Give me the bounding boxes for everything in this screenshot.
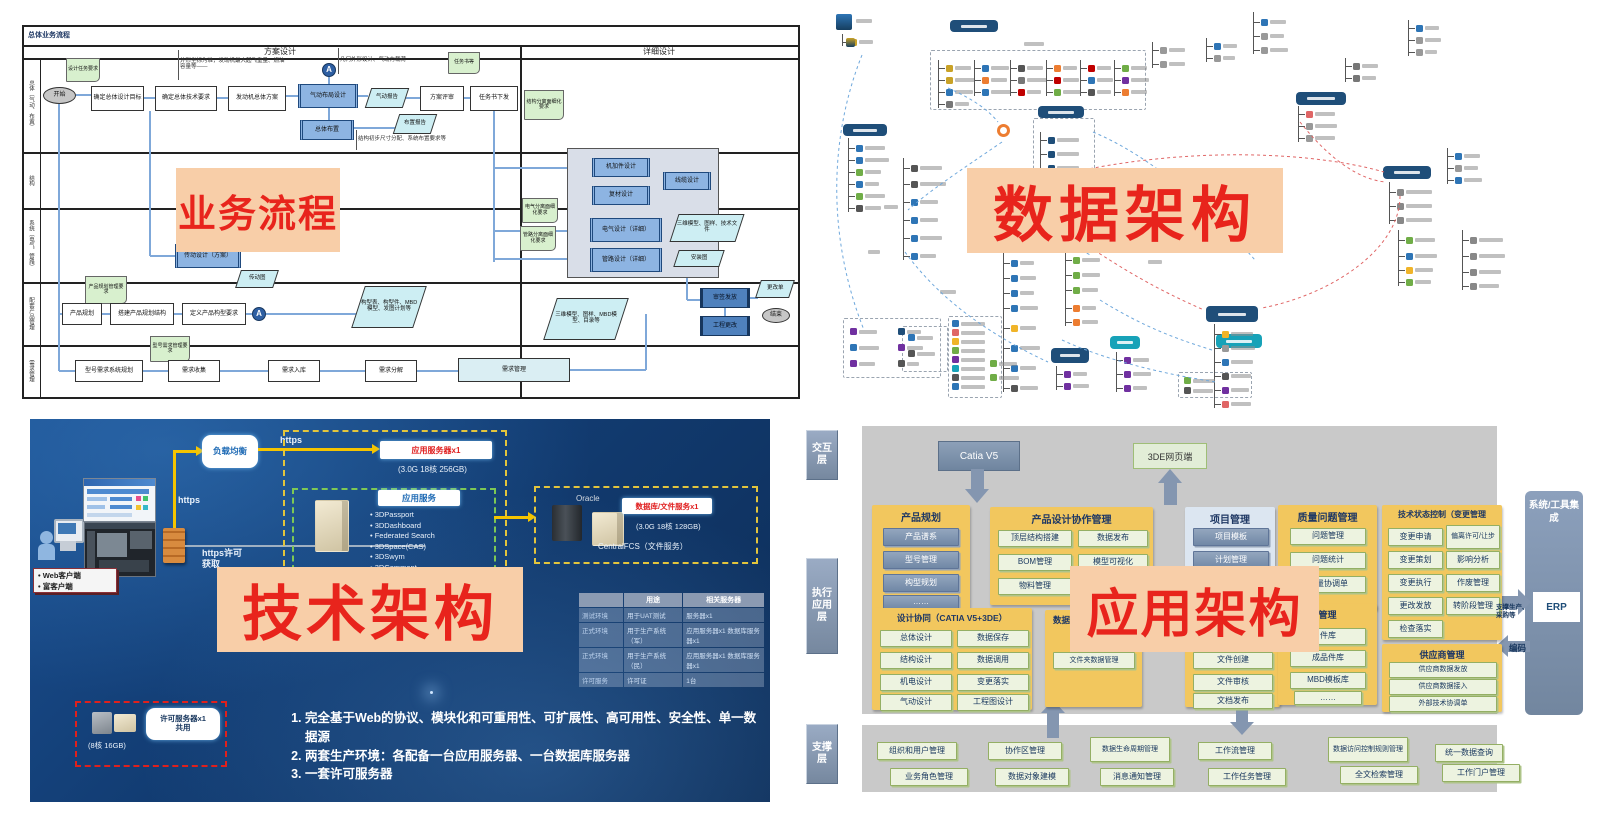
tree-node-label-bar — [1415, 268, 1433, 272]
lane-label-4: 需求管理 — [23, 345, 39, 397]
tree-branch — [1040, 154, 1047, 155]
table-header: 用途 — [624, 593, 682, 607]
tree-branch — [1003, 328, 1010, 329]
tree-branch — [1046, 80, 1053, 81]
web-client-screenshot — [83, 478, 156, 522]
tree-trunk-24 — [842, 34, 843, 46]
tree-node-icon — [911, 181, 918, 188]
app-button-8-1[interactable]: 成品件库 — [1290, 650, 1366, 667]
tree-node-label-bar — [955, 66, 971, 70]
tree-branch — [848, 208, 855, 209]
tree-node-label-bar — [1133, 386, 1147, 390]
tree-node-icon — [856, 181, 863, 188]
tree-node-icon — [1048, 151, 1055, 158]
leaf-label-bar — [961, 367, 985, 371]
leaf-icon-12 — [952, 356, 959, 363]
app-button-9-1[interactable]: 供应商数据接入 — [1389, 679, 1497, 695]
tree-node-label-bar — [991, 90, 1011, 94]
erp-box: ERP — [1533, 592, 1580, 622]
tree-trunk-18 — [1398, 230, 1399, 286]
tree-node-label-bar — [1027, 90, 1041, 94]
tree-branch — [1214, 348, 1221, 349]
tree-branch — [1206, 58, 1213, 59]
app-button-0-1[interactable]: 型号管理 — [883, 551, 959, 569]
tree-node-label-bar — [1425, 50, 1437, 54]
flow-node-proc-30: 产品规划 — [62, 303, 102, 325]
app-button-2-0[interactable]: 项目模板 — [1193, 528, 1269, 546]
app-button-5-0[interactable]: 总体设计 — [880, 630, 952, 647]
tree-node-icon — [1054, 77, 1061, 84]
leaf-icon-0 — [850, 328, 857, 335]
leaf-icon-17 — [990, 374, 997, 381]
tree-node-icon — [911, 199, 918, 206]
tree-node-icon — [1455, 165, 1462, 172]
service-item: • 3DSpace(CAS) — [370, 542, 435, 553]
flow-line-31 — [724, 308, 725, 316]
app-button-0-2[interactable]: 构型规划 — [883, 574, 959, 592]
app-button-4-6[interactable]: 更改发放 — [1388, 597, 1443, 615]
tree-trunk-3 — [1046, 60, 1047, 96]
app-button-7-1[interactable]: 文件审核 — [1193, 674, 1273, 691]
leaf-label-bar — [907, 330, 921, 334]
tree-node-label-bar — [1057, 138, 1079, 142]
tree-node-icon — [1397, 203, 1404, 210]
flow-line-16 — [59, 370, 75, 371]
business-process-flowchart: 总体业务流程方案设计详细设计总体（气动、布置）结构系统（电气、管路）配套产品管理… — [0, 0, 804, 408]
tree-node-label-bar — [1073, 372, 1087, 376]
leaf-label-bar — [907, 346, 923, 350]
leaf-icon-13 — [952, 365, 959, 372]
float-label-bar-0 — [856, 19, 872, 23]
tree-node-icon — [1406, 279, 1413, 286]
tree-trunk-20 — [1447, 148, 1448, 184]
leaf-label-bar — [859, 330, 877, 334]
tree-node-label-bar — [920, 254, 936, 258]
tree-node-icon — [1054, 89, 1061, 96]
tree-branch — [903, 202, 910, 203]
mindmap-topic-pill-7 — [1110, 336, 1140, 349]
service-item: • 3DPassport — [370, 510, 435, 521]
leaf-label-bar — [961, 349, 985, 353]
support-button-3[interactable]: 工作流管理 — [1198, 742, 1272, 760]
tree-node-label-bar — [1406, 204, 1432, 208]
tree-node-icon — [856, 169, 863, 176]
tree-node-icon — [1073, 305, 1080, 312]
tree-node-icon — [1054, 65, 1061, 72]
tree-trunk-14 — [1003, 253, 1004, 392]
tree-node-label-bar — [1362, 64, 1378, 68]
tree-node-icon — [1122, 77, 1129, 84]
app-server-icon — [315, 500, 349, 552]
tree-node-label-bar — [1362, 76, 1376, 80]
tree-branch — [1214, 404, 1221, 405]
tree-node-icon — [946, 101, 953, 108]
tree-node-label-bar — [1223, 56, 1235, 60]
tree-branch — [974, 92, 981, 93]
section-title: 质量问题管理 — [1278, 505, 1377, 524]
tree-branch — [938, 68, 945, 69]
tree-node-icon — [911, 235, 918, 242]
float-label-bar-5 — [940, 290, 956, 294]
tree-node-icon — [911, 217, 918, 224]
app-server-title: 应用服务器x1 — [380, 441, 492, 459]
app-button-6-0[interactable]: 文件夹数据管理 — [1053, 652, 1135, 669]
leaf-label-bar — [961, 376, 985, 380]
tree-branch — [938, 80, 945, 81]
support-button-10[interactable]: 全文检索管理 — [1340, 766, 1418, 784]
tree-node-label-bar — [1479, 238, 1503, 242]
table-row: 许可服务许可证1台 — [579, 673, 764, 687]
app-button-1-0[interactable]: 顶层结构搭建 — [998, 530, 1072, 547]
tree-node-label-bar — [1073, 384, 1089, 388]
flow-node-note-29: 产品规划管理要求 — [85, 276, 127, 304]
tree-node-icon — [1353, 63, 1360, 70]
tree-node-icon — [1470, 253, 1477, 260]
section-title: 设计协同（CATIA V5+3DE） — [872, 608, 1032, 624]
tree-branch — [848, 196, 855, 197]
tree-node-icon — [856, 205, 863, 212]
tree-node-label-bar — [1231, 374, 1251, 378]
tree-branch — [1116, 374, 1123, 375]
tree-node-icon — [1416, 49, 1423, 56]
column-header-detail: 详细设计 — [520, 46, 798, 58]
tree-node-label-bar — [1063, 78, 1079, 82]
tree-branch — [848, 184, 855, 185]
mindmap-topic-pill-2 — [1038, 106, 1084, 118]
flow-node-ell-1: 开始 — [43, 87, 76, 104]
tree-branch — [848, 172, 855, 173]
flow-line-4 — [328, 77, 329, 84]
app-button-3-0[interactable]: 问题管理 — [1290, 528, 1366, 545]
tree-node-label-bar — [920, 182, 946, 186]
tree-node-icon — [1397, 217, 1404, 224]
tree-node-label-bar — [1020, 366, 1036, 370]
flow-node-proc-42: 需求收集 — [168, 360, 220, 382]
tree-trunk-16 — [1298, 106, 1299, 142]
flow-line-17 — [149, 111, 150, 256]
tree-node-label-bar — [1131, 78, 1149, 82]
table-cell: 用于生产系统（民） — [624, 648, 682, 672]
overlay-tech-architecture: 技术架构 — [217, 567, 523, 652]
tree-node-label-bar — [865, 194, 885, 198]
support-button-1[interactable]: 协作区管理 — [988, 742, 1062, 760]
leaf-label-bar — [961, 322, 985, 326]
leaf-label-bar — [1193, 379, 1215, 383]
app-button-0-0[interactable]: 产品谱系 — [883, 528, 959, 546]
tree-node-icon — [982, 89, 989, 96]
user-icon — [38, 517, 86, 569]
mindmap-topic-pill-6 — [1051, 348, 1089, 363]
overlay-app-architecture: 应用架构 — [1070, 566, 1319, 652]
flow-node-para-8: 气动报告 — [365, 88, 409, 108]
flow-line-6 — [328, 108, 329, 120]
support-button-0[interactable]: 组织和用户管理 — [877, 742, 957, 760]
tree-node-label-bar — [865, 206, 881, 210]
tree-node-label-bar — [1131, 66, 1147, 70]
table-cell: 用于UAT测试 — [624, 608, 682, 622]
support-button-7[interactable]: 数据对象建模 — [995, 768, 1069, 786]
tree-node-label-bar — [865, 182, 879, 186]
tree-node-icon — [1214, 55, 1221, 62]
app-button-5-5[interactable]: 变更落实 — [957, 674, 1029, 691]
app-button-1-1[interactable]: 数据发布 — [1078, 530, 1148, 547]
tree-node-icon — [946, 89, 953, 96]
leaf-icon-4 — [898, 344, 905, 351]
tree-node-icon — [1261, 47, 1268, 54]
tree-branch — [1298, 126, 1305, 127]
flow-node-proc-2: 确定总体设计目标 — [91, 86, 144, 111]
support-button-4[interactable]: 数据访问控制规则管理 — [1328, 737, 1408, 762]
tree-node-icon — [1064, 383, 1071, 390]
catia-v5-box: Catia V5 — [938, 441, 1020, 471]
tree-node-icon — [1353, 75, 1360, 82]
tree-trunk-1 — [974, 60, 975, 96]
leaf-icon-16 — [990, 360, 997, 367]
app-button-8-2[interactable]: MBD模板库 — [1290, 672, 1366, 689]
table-cell: 1台 — [683, 673, 764, 687]
tree-branch — [1114, 92, 1121, 93]
app-button-5-3[interactable]: 数据调用 — [957, 652, 1029, 669]
tree-node-icon — [1122, 89, 1129, 96]
tree-node-icon — [946, 77, 953, 84]
app-button-4-3[interactable]: 影响分析 — [1446, 551, 1500, 569]
leaf-icon-3 — [898, 328, 905, 335]
tree-branch — [1214, 376, 1221, 377]
support-button-6[interactable]: 业务角色管理 — [890, 768, 968, 786]
app-button-4-0[interactable]: 变更申请 — [1388, 528, 1443, 546]
support-button-8[interactable]: 消息通知管理 — [1100, 768, 1174, 786]
tree-node-label-bar — [1082, 306, 1096, 310]
flow-node-note-0: 设计任务要求 — [66, 58, 100, 82]
license-spec: (8核 16GB) — [88, 740, 126, 751]
service-item: • 3DSwym — [370, 552, 435, 563]
header-separator — [22, 58, 798, 60]
flow-line-24 — [220, 370, 268, 371]
leaf-icon-1 — [850, 344, 857, 351]
tree-node-icon — [1222, 331, 1229, 338]
app-button-7-0[interactable]: 文件创建 — [1193, 652, 1273, 669]
tree-node-icon — [1397, 189, 1404, 196]
https-left-label: https — [178, 495, 200, 505]
tree-branch — [1462, 240, 1469, 241]
layer-tab-interaction: 交互层 — [806, 430, 838, 480]
support-button-5[interactable]: 统一数据查询 — [1435, 744, 1503, 762]
app-button-9-0[interactable]: 供应商数据发放 — [1389, 662, 1497, 678]
tree-node-icon — [1011, 325, 1018, 332]
tree-node-label-bar — [1464, 166, 1478, 170]
app-button-4-5[interactable]: 作废管理 — [1446, 574, 1500, 592]
tree-branch — [1046, 68, 1053, 69]
note-item: 完全基于Web的协议、模块化和可重用性、可扩展性、高可用性、安全性、单一数据源 — [305, 709, 767, 747]
leaf-label-bar — [917, 336, 933, 340]
flow-line-27 — [570, 369, 646, 370]
tree-node-label-bar — [1082, 258, 1100, 262]
catia-down-arrow — [971, 469, 984, 489]
app-button-9-2[interactable]: 外部技术协调单 — [1389, 696, 1497, 712]
tree-node-icon — [1306, 111, 1313, 118]
tree-trunk-8 — [1253, 12, 1254, 54]
tree-node-icon — [1011, 275, 1018, 282]
section-title: 供应商管理 — [1382, 644, 1502, 661]
tree-node-icon — [1122, 65, 1129, 72]
tree-branch — [1408, 40, 1415, 41]
app-button-4-1[interactable]: 偏离许可/让步 — [1446, 525, 1500, 549]
tree-node-label-bar — [1231, 346, 1255, 350]
flow-node-cA-33: A — [252, 307, 266, 321]
app-button-7-2[interactable]: 文档发布 — [1193, 693, 1273, 709]
tree-node-label-bar — [865, 170, 881, 174]
tree-node-label-bar — [1063, 66, 1077, 70]
tree-node-label-bar — [1231, 388, 1249, 392]
leaf-icon-18 — [1184, 377, 1191, 384]
tree-node-icon — [1018, 89, 1025, 96]
app-button-4-8[interactable]: 检查落实 — [1388, 620, 1443, 638]
tree-node-label-bar — [1464, 178, 1482, 182]
tree-node-icon — [1416, 25, 1423, 32]
tree-branch — [1065, 308, 1072, 309]
tree-branch — [1003, 368, 1010, 369]
tree-branch — [848, 160, 855, 161]
tree-node-icon — [1064, 371, 1071, 378]
tree-branch — [903, 184, 910, 185]
app-button-4-7[interactable]: 转阶段管理 — [1446, 597, 1500, 615]
tree-node-label-bar — [1223, 44, 1237, 48]
leaf-label-bar — [1193, 389, 1213, 393]
tree-node-label-bar — [1406, 218, 1432, 222]
tree-trunk-12 — [903, 158, 904, 260]
license-line2: 共用 — [176, 724, 191, 733]
table-header: 相关服务器 — [683, 593, 764, 607]
flow-line-14 — [58, 104, 59, 371]
flow-node-proc-4: 发动机总体方案 — [228, 86, 286, 111]
big-icon-0 — [836, 14, 852, 30]
app-button-5-7[interactable]: 工程图设计 — [957, 694, 1029, 711]
tree-node-label-bar — [1169, 48, 1185, 52]
leaf-label-bar — [907, 362, 919, 366]
flow-node-para-24: 安装图 — [673, 250, 725, 267]
lane-label-0: 总体（气动、布置） — [23, 58, 39, 152]
tree-node-icon — [1470, 269, 1477, 276]
tree-branch — [1298, 114, 1305, 115]
flow-node-para-38: 更改单 — [755, 280, 795, 298]
tree-node-label-bar — [1270, 34, 1284, 38]
flow-line-25 — [320, 370, 365, 371]
app-button-5-4[interactable]: 机电设计 — [880, 674, 952, 691]
flow-node-ann-15: 结构初步尺寸分配、系统布置要求等 — [356, 130, 448, 150]
tree-branch — [1447, 168, 1454, 169]
support-button-2[interactable]: 数据生命周期管理 — [1090, 737, 1170, 762]
table-cell: 服务器x1 — [683, 608, 764, 622]
lane-label-3: 配套产品管理 — [23, 282, 39, 345]
tree-branch — [938, 104, 945, 105]
support-button-11[interactable]: 工作门户管理 — [1442, 764, 1520, 782]
tree-node-icon — [1073, 257, 1080, 264]
tree-branch — [974, 68, 981, 69]
tree-node-label-bar — [1425, 26, 1439, 30]
tree-node-label-bar — [1315, 124, 1337, 128]
app-button-1-4[interactable]: 物料管理 — [998, 578, 1072, 595]
flow-node-note-26: 管路分离面细化要求 — [520, 226, 556, 251]
app-button-1-2[interactable]: BOM管理 — [998, 554, 1072, 571]
tech-notes-list: 完全基于Web的协议、模块化和可重用性、可扩展性、高可用性、安全性、单一数据源两… — [283, 709, 767, 784]
app-button-5-1[interactable]: 数据保存 — [957, 630, 1029, 647]
tree-node-icon — [1048, 137, 1055, 144]
tree-node-icon — [1214, 43, 1221, 50]
app-button-4-2[interactable]: 变更策划 — [1388, 551, 1443, 569]
lb-line — [173, 450, 197, 453]
float-label-bar-2 — [884, 205, 898, 209]
tree-node-label-bar — [1133, 358, 1149, 362]
flow-node-spdark-36: 审签发放 — [700, 288, 750, 308]
app-button-4-4[interactable]: 变更执行 — [1388, 574, 1443, 592]
overlay-business-process: 业务流程 — [176, 168, 340, 252]
table-row: 正式环境用于生产系统（民）应用服务器x1 数据库服务器x1 — [579, 648, 764, 672]
layer-tab-support: 支撑层 — [806, 724, 838, 784]
oracle-label: Oracle — [576, 494, 600, 503]
service-item: • 3DDashboard — [370, 521, 435, 532]
tree-node-label-bar — [920, 166, 942, 170]
tree-trunk-21 — [1214, 324, 1215, 408]
tree-trunk-5 — [1114, 60, 1115, 96]
flow-node-sp-20: 线缆设计 — [663, 172, 711, 190]
tree-node-label-bar — [1027, 78, 1047, 82]
service-item: • Federated Search — [370, 531, 435, 542]
flow-line-5 — [358, 95, 368, 96]
load-balancer: 负载均衡 — [202, 435, 258, 468]
db-spec: (3.0G 18核 128GB) — [636, 521, 701, 532]
leaf-icon-8 — [952, 320, 959, 327]
erp-note: 支撑生产、采购等 — [1496, 604, 1534, 620]
leaf-icon-9 — [952, 329, 959, 336]
tree-node-label-bar — [1020, 306, 1038, 310]
section-title: 产品设计协作管理 — [990, 507, 1153, 526]
tree-node-icon — [1406, 253, 1413, 260]
tree-node-label-bar — [955, 90, 973, 94]
tree-branch — [1408, 52, 1415, 53]
table-cell: 正式环境 — [579, 623, 623, 647]
support-up-arrow — [1047, 713, 1059, 738]
tree-node-icon — [1222, 401, 1229, 408]
tree-node-icon — [982, 77, 989, 84]
app-button-8-3[interactable]: …… — [1294, 691, 1362, 705]
tree-node-label-bar — [1415, 238, 1435, 242]
table-row: 测试环境用于UAT测试服务器x1 — [579, 608, 764, 622]
tree-node-label-bar — [1479, 270, 1501, 274]
app-button-5-6[interactable]: 气动设计 — [880, 694, 952, 711]
flow-node-sp-19: 复材设计 — [592, 186, 650, 205]
tree-branch — [1206, 46, 1213, 47]
app-button-5-2[interactable]: 结构设计 — [880, 652, 952, 669]
mindmap-topic-pill-0 — [950, 20, 998, 32]
tree-node-icon — [1261, 19, 1268, 26]
flow-node-proc-32: 定义产品构型要求 — [182, 303, 246, 325]
tree-branch — [1114, 68, 1121, 69]
flow-node-proc-43: 需求入库 — [268, 360, 320, 382]
support-button-9[interactable]: 工作任务管理 — [1208, 768, 1286, 786]
tree-node-label-bar — [1425, 38, 1441, 42]
flow-node-proc-11: 任务书下发 — [470, 86, 518, 111]
firewall-icon — [163, 528, 185, 563]
tree-node-label-bar — [1020, 261, 1034, 265]
tree-branch — [974, 80, 981, 81]
flow-line-10 — [493, 111, 494, 262]
table-cell: 正式环境 — [579, 648, 623, 672]
leaf-icon-11 — [952, 347, 959, 354]
tree-node-label-bar — [1097, 78, 1113, 82]
layer-tab-execution: 执行应用层 — [806, 558, 838, 654]
db-arrow-line — [494, 516, 530, 519]
tree-node-icon — [1088, 77, 1095, 84]
